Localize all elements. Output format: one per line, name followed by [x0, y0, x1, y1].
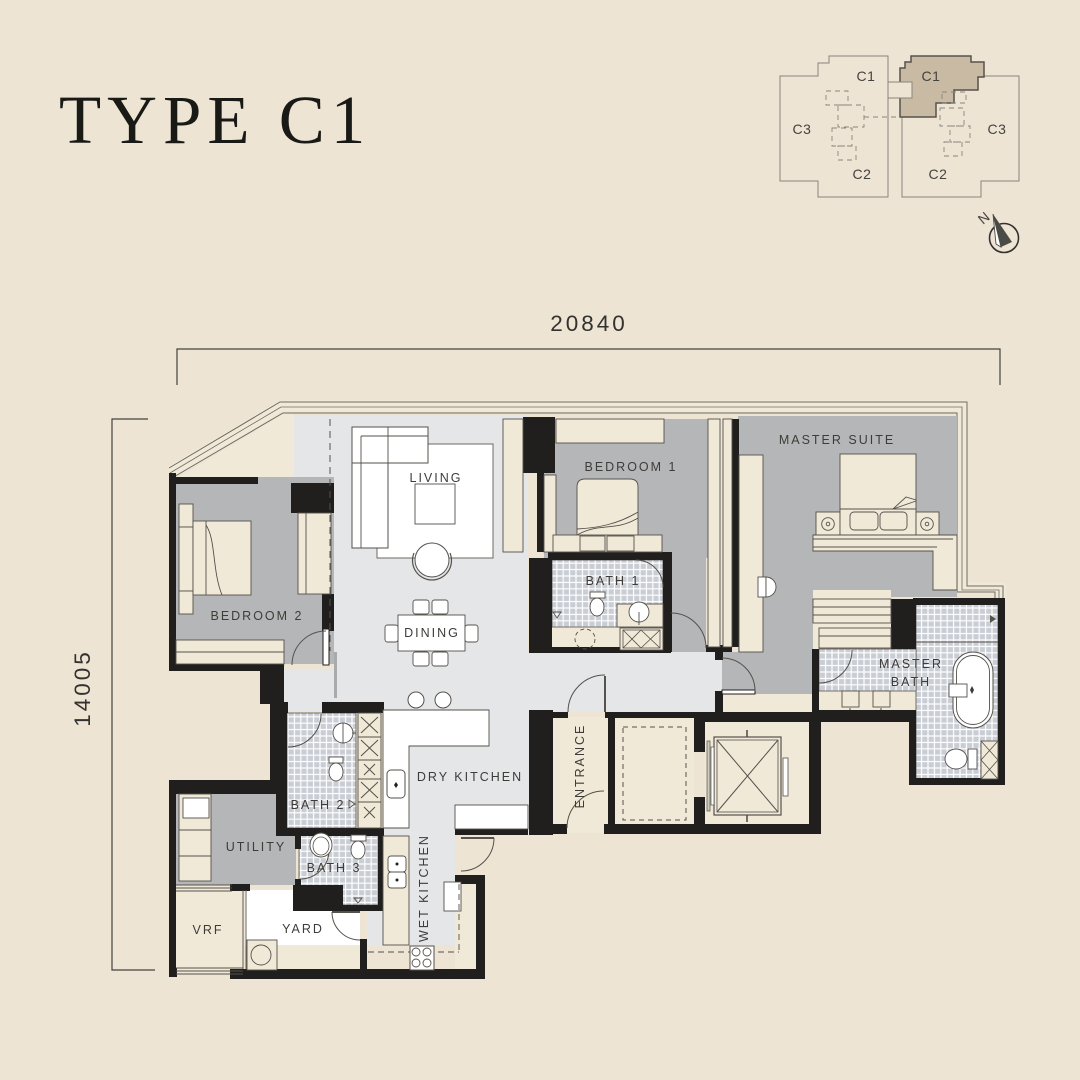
svg-text:ENTRANCE: ENTRANCE: [573, 724, 587, 809]
svg-text:C2: C2: [929, 166, 948, 182]
svg-text:BATH: BATH: [891, 675, 931, 689]
svg-text:LIVING: LIVING: [410, 471, 463, 485]
svg-text:BEDROOM 2: BEDROOM 2: [210, 609, 303, 623]
svg-text:C3: C3: [988, 121, 1007, 137]
svg-text:TYPE C1: TYPE C1: [59, 82, 371, 158]
svg-text:C3: C3: [793, 121, 812, 137]
svg-text:C2: C2: [853, 166, 872, 182]
svg-text:BATH 3: BATH 3: [307, 861, 362, 875]
svg-text:BATH 1: BATH 1: [586, 574, 641, 588]
svg-text:C1: C1: [922, 68, 941, 84]
svg-text:BEDROOM 1: BEDROOM 1: [584, 460, 677, 474]
svg-text:MASTER: MASTER: [879, 657, 943, 671]
svg-text:C1: C1: [857, 68, 876, 84]
svg-text:20840: 20840: [550, 311, 628, 336]
svg-text:DINING: DINING: [404, 626, 460, 640]
svg-text:DRY KITCHEN: DRY KITCHEN: [417, 770, 523, 784]
svg-text:14005: 14005: [70, 649, 95, 727]
svg-text:UTILITY: UTILITY: [226, 840, 287, 854]
svg-text:MASTER SUITE: MASTER SUITE: [779, 433, 895, 447]
svg-text:WET KITCHEN: WET KITCHEN: [417, 834, 431, 942]
svg-text:BATH 2: BATH 2: [291, 798, 346, 812]
svg-text:VRF: VRF: [193, 923, 224, 937]
svg-text:YARD: YARD: [282, 922, 324, 936]
